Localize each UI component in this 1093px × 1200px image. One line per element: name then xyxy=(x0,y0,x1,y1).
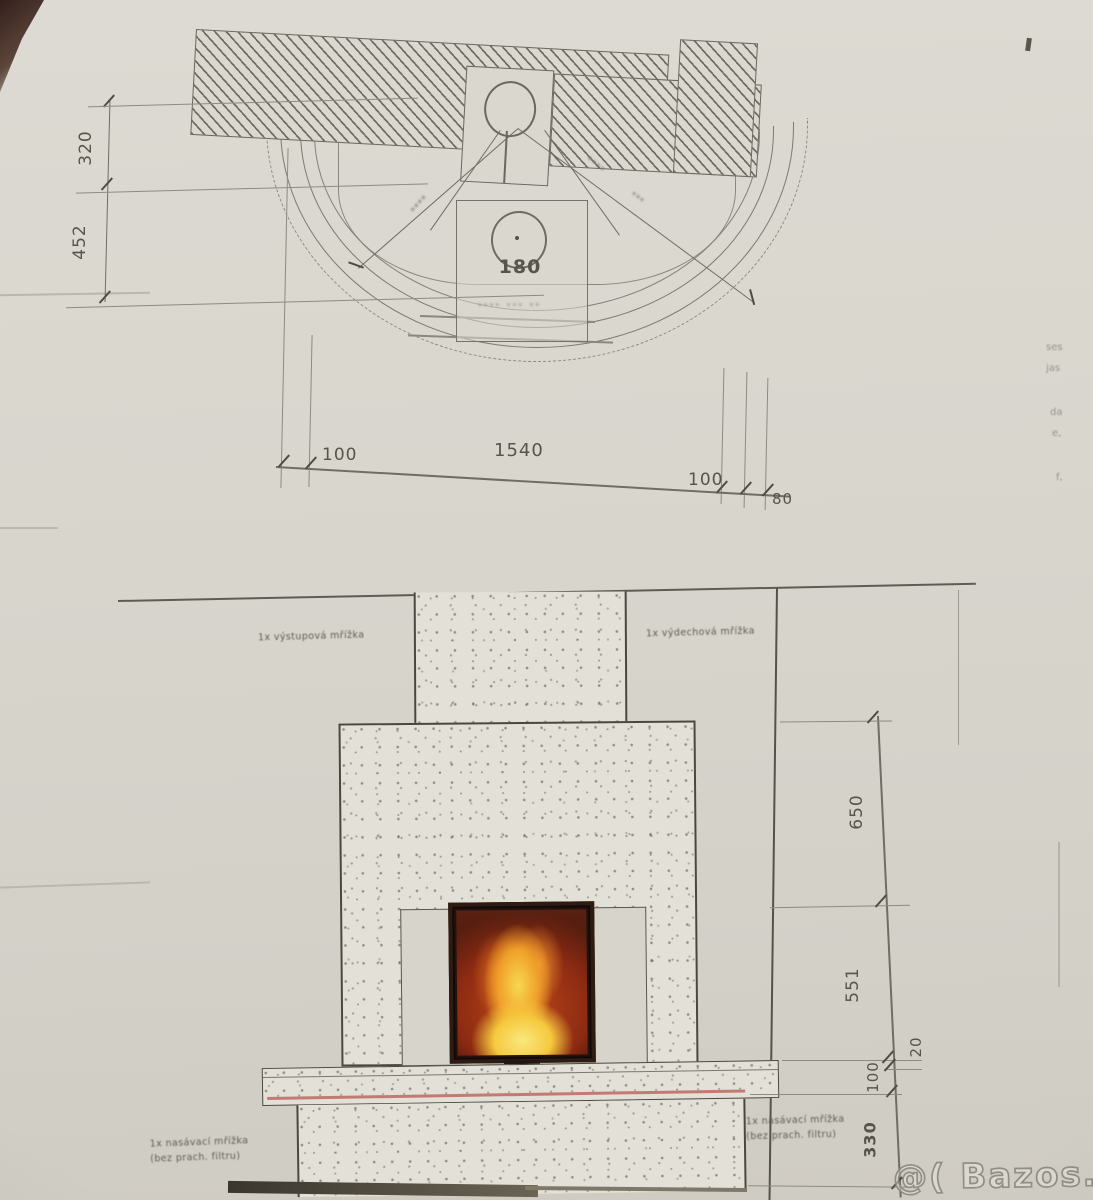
edge-text-fragment: jas xyxy=(1046,363,1060,374)
dim-1540: 1540 xyxy=(494,440,544,461)
dim-100-right: 100 xyxy=(688,470,723,490)
flue-pipe-circle xyxy=(483,80,538,139)
hearth-lip-line xyxy=(263,1069,778,1078)
label-left-grille: 1x výstupová mřížka xyxy=(258,629,365,647)
dim-551: 551 xyxy=(843,955,863,1015)
dim-100: 100 xyxy=(864,1049,882,1105)
dim-80: 80 xyxy=(772,490,793,508)
label-line2: (bez prach. filtru) xyxy=(150,1149,249,1167)
edge-text-fragment: da xyxy=(1050,407,1062,418)
bazos-watermark: @( Bazos.cz xyxy=(893,1154,1093,1198)
edge-text-fragment: e, xyxy=(1052,428,1061,439)
label-intake-grille-right: 1x nasávací mřížka (bez prach. filtru) xyxy=(746,1113,846,1145)
paper-crease xyxy=(1058,842,1060,987)
chimney-column xyxy=(414,591,628,724)
paper-crease xyxy=(0,881,150,888)
illegible-detail-note: ∙∙∙∙ ∙∙∙ ∙∙ xyxy=(478,300,541,311)
plan-wall-group xyxy=(187,29,765,220)
paper-crease xyxy=(0,292,150,296)
firebox-insert xyxy=(448,901,596,1064)
dimension-line-right xyxy=(877,716,901,1198)
label-line2: (bez prach. filtru) xyxy=(746,1127,845,1144)
extension-line xyxy=(748,1185,908,1188)
paper-mark xyxy=(1025,38,1032,52)
dim-330: 330 xyxy=(861,1110,880,1170)
fire-photo xyxy=(456,909,588,1055)
extension-line xyxy=(770,905,910,909)
edge-text-fragment: ses xyxy=(1046,342,1063,353)
extension-line xyxy=(780,721,892,723)
label-right-grille: 1x výdechová mřížka xyxy=(646,625,755,643)
faint-vertical-line xyxy=(958,590,959,745)
photo-corner-shadow xyxy=(0,0,44,92)
edge-text-fragment: f, xyxy=(1056,472,1063,483)
wall-hatched-block-corner xyxy=(673,39,758,177)
dim-320: 320 xyxy=(76,118,96,178)
hearth-red-line xyxy=(267,1089,745,1099)
dim-100-left: 100 xyxy=(322,445,357,465)
paper-crease xyxy=(0,527,58,529)
extension-line xyxy=(884,1069,922,1070)
flue-diameter-label: 180 xyxy=(490,256,550,278)
label-intake-grille-left: 1x nasávací mřížka (bez prach. filtru) xyxy=(150,1134,250,1167)
scanned-drawing-page: 180 ∙∙∙∙ ∙∙∙ ∙∙ ∙∙∙∙ ∙∙∙∙ ∙∙∙ 320 452 10… xyxy=(0,0,1093,1200)
flue-center-dot xyxy=(515,236,519,240)
dim-20: 20 xyxy=(907,1027,925,1067)
right-wall-line xyxy=(768,588,778,1200)
dimension-line-left xyxy=(105,100,111,302)
dim-650: 650 xyxy=(847,782,867,842)
dim-452: 452 xyxy=(70,212,90,272)
dimension-tick xyxy=(749,289,755,305)
